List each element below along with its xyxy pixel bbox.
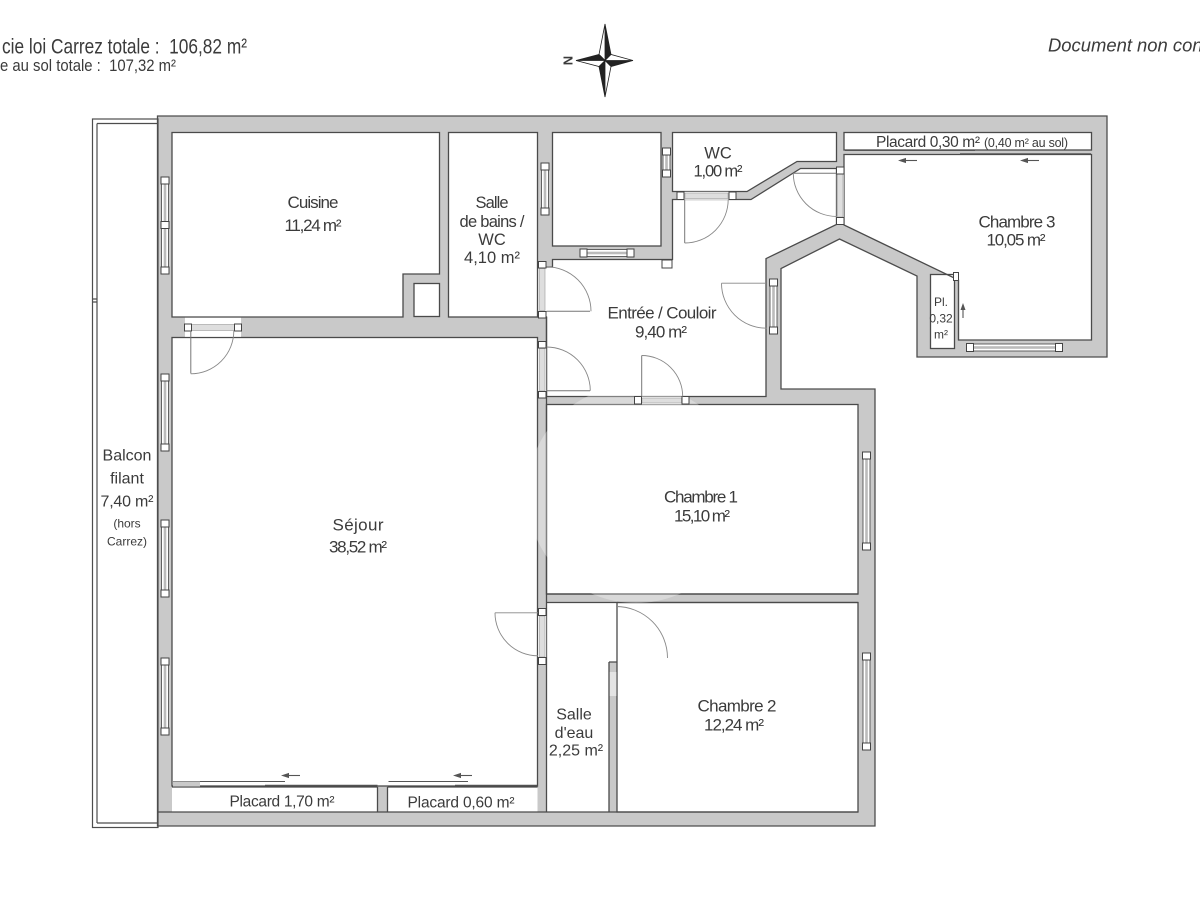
svg-text:11,24 m²: 11,24 m² [285, 216, 342, 235]
svg-text:e au sol totale : 107,32 m²: e au sol totale : 107,32 m² [0, 57, 176, 75]
svg-text:Chambre 1: Chambre 1 [664, 488, 738, 507]
svg-text:Placard 1,70 m²: Placard 1,70 m² [230, 794, 335, 811]
svg-text:Entrée / Couloir: Entrée / Couloir [608, 304, 717, 323]
svg-text:Carrez): Carrez) [107, 535, 147, 549]
svg-text:WC: WC [478, 231, 506, 249]
svg-text:Document non contractuel: Document non contractuel [1048, 36, 1200, 56]
svg-text:Salle: Salle [556, 707, 592, 724]
svg-text:Placard 0,30 m²: Placard 0,30 m² [876, 134, 980, 151]
svg-text:d'eau: d'eau [555, 725, 594, 742]
svg-text:Cuisine: Cuisine [288, 193, 339, 212]
svg-text:Séjour: Séjour [333, 516, 384, 535]
svg-text:Placard 0,60 m²: Placard 0,60 m² [408, 795, 515, 812]
svg-text:WC: WC [704, 145, 732, 163]
svg-text:de bains /: de bains / [460, 213, 525, 231]
svg-text:Balcon: Balcon [103, 448, 152, 465]
svg-text:filant: filant [110, 471, 144, 488]
svg-text:0,32: 0,32 [929, 312, 953, 326]
svg-text:Salle: Salle [476, 194, 509, 212]
svg-text:(0,40 m² au sol): (0,40 m² au sol) [984, 136, 1068, 150]
svg-text:N: N [561, 56, 576, 65]
svg-text:4,10 m²: 4,10 m² [464, 249, 520, 267]
svg-text:m²: m² [934, 328, 948, 342]
svg-text:9,40 m²: 9,40 m² [635, 323, 687, 342]
svg-text:38,52 m²: 38,52 m² [329, 538, 387, 557]
svg-text:10,05 m²: 10,05 m² [987, 231, 1046, 250]
svg-text:(hors: (hors [113, 517, 140, 531]
svg-text:Chambre 2: Chambre 2 [698, 697, 777, 716]
svg-text:12,24 m²: 12,24 m² [704, 716, 764, 735]
svg-text:7,40 m²: 7,40 m² [101, 494, 155, 511]
svg-text:Pl.: Pl. [934, 295, 948, 309]
svg-text:1,00 m²: 1,00 m² [694, 163, 744, 181]
svg-text:Chambre 3: Chambre 3 [979, 213, 1056, 232]
svg-text:cie loi Carrez totale : 106,8: cie loi Carrez totale : 106,82 m² [2, 36, 247, 59]
svg-text:15,10 m²: 15,10 m² [674, 507, 730, 526]
svg-text:2,25 m²: 2,25 m² [549, 743, 604, 760]
